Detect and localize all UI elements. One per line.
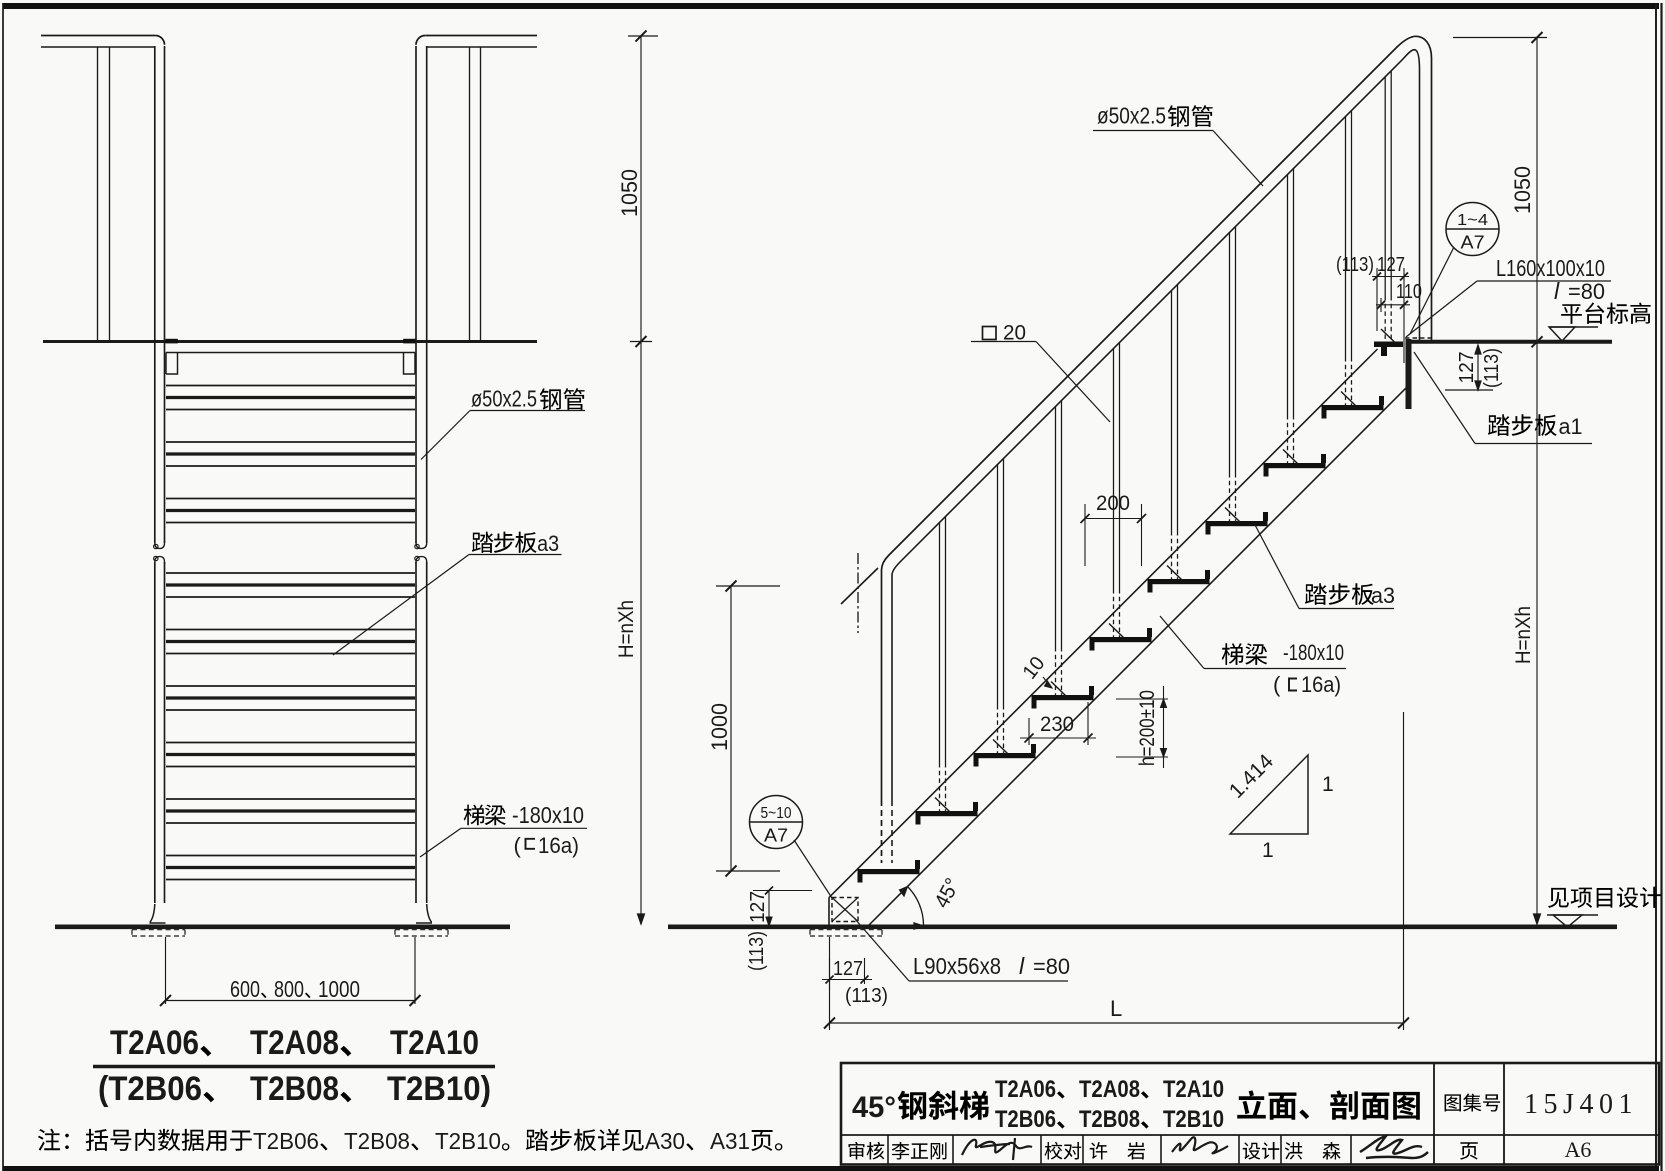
- svg-text:1050: 1050: [1510, 166, 1535, 214]
- svg-text:a1: a1: [1559, 414, 1583, 439]
- svg-text:T2B08: T2B08: [250, 1070, 339, 1108]
- svg-text:l: l: [1019, 953, 1025, 979]
- svg-text:1000: 1000: [318, 976, 360, 1002]
- svg-text:L160x100x10: L160x100x10: [1496, 255, 1605, 281]
- svg-text:1: 1: [1322, 773, 1334, 796]
- svg-text:-180x10: -180x10: [1283, 640, 1344, 665]
- svg-text:1~4: 1~4: [1457, 212, 1488, 229]
- svg-text:600: 600: [230, 976, 260, 1002]
- svg-text:a3: a3: [537, 531, 559, 556]
- svg-text:200: 200: [1096, 492, 1130, 515]
- svg-text:A6: A6: [1565, 1137, 1592, 1162]
- svg-text:T2A10: T2A10: [390, 1024, 479, 1062]
- svg-text:230: 230: [1040, 713, 1074, 736]
- svg-text:800: 800: [274, 976, 304, 1002]
- svg-text:T2B06: T2B06: [995, 1106, 1056, 1133]
- svg-text:(: (: [1273, 672, 1281, 697]
- svg-text:1000: 1000: [707, 703, 732, 751]
- svg-text:H=nXh: H=nXh: [1512, 606, 1535, 664]
- svg-text:T2B08: T2B08: [344, 1128, 410, 1154]
- svg-text:T2A08: T2A08: [1079, 1076, 1140, 1103]
- svg-text:A31: A31: [710, 1128, 750, 1154]
- svg-text:(113): (113): [746, 931, 768, 971]
- svg-text:127: 127: [1456, 352, 1478, 384]
- svg-text:H=nXh: H=nXh: [615, 600, 638, 658]
- svg-text:T2A08: T2A08: [250, 1024, 339, 1062]
- svg-text:ø50x2.5: ø50x2.5: [471, 386, 537, 412]
- svg-text:T2A06: T2A06: [995, 1076, 1056, 1103]
- svg-text:T2B10: T2B10: [1163, 1106, 1224, 1133]
- svg-text:h=200±10: h=200±10: [1136, 690, 1159, 766]
- svg-text:=80: =80: [1033, 954, 1070, 979]
- svg-text:(: (: [514, 833, 522, 858]
- svg-text:L90x56x8: L90x56x8: [913, 953, 1001, 979]
- svg-text:A7: A7: [764, 826, 788, 846]
- svg-text:110: 110: [1396, 281, 1422, 303]
- svg-text:l: l: [1554, 278, 1560, 304]
- svg-text:=80: =80: [1568, 279, 1605, 304]
- svg-text:T2A06: T2A06: [110, 1024, 199, 1062]
- svg-text:T2B08: T2B08: [1079, 1106, 1140, 1133]
- svg-text:1: 1: [1262, 839, 1274, 862]
- svg-text:(113): (113): [1336, 254, 1374, 276]
- svg-text:ø50x2.5: ø50x2.5: [1097, 103, 1166, 129]
- svg-text:T2B10: T2B10: [435, 1128, 501, 1154]
- svg-text:A7: A7: [1461, 233, 1485, 253]
- svg-text:(T2B06: (T2B06: [98, 1070, 202, 1108]
- svg-text:127: 127: [747, 891, 769, 923]
- svg-text:16a): 16a): [1301, 672, 1341, 697]
- svg-text:(113): (113): [1481, 348, 1503, 388]
- svg-text:(113): (113): [845, 985, 888, 1007]
- svg-text:L: L: [1110, 996, 1122, 1021]
- svg-text:-180x10: -180x10: [512, 802, 584, 828]
- svg-text:T2A10: T2A10: [1163, 1076, 1224, 1103]
- svg-text:16a): 16a): [538, 833, 579, 858]
- svg-text:T2B10): T2B10): [387, 1070, 491, 1108]
- svg-text:127: 127: [833, 958, 863, 980]
- svg-text:5~10: 5~10: [761, 805, 792, 822]
- svg-text:A30: A30: [645, 1128, 685, 1154]
- svg-text:a3: a3: [1371, 583, 1395, 608]
- svg-text:45°: 45°: [852, 1091, 896, 1124]
- svg-text:1050: 1050: [617, 169, 642, 217]
- svg-text:T2B06: T2B06: [253, 1128, 319, 1154]
- svg-text:15J401: 15J401: [1524, 1089, 1638, 1120]
